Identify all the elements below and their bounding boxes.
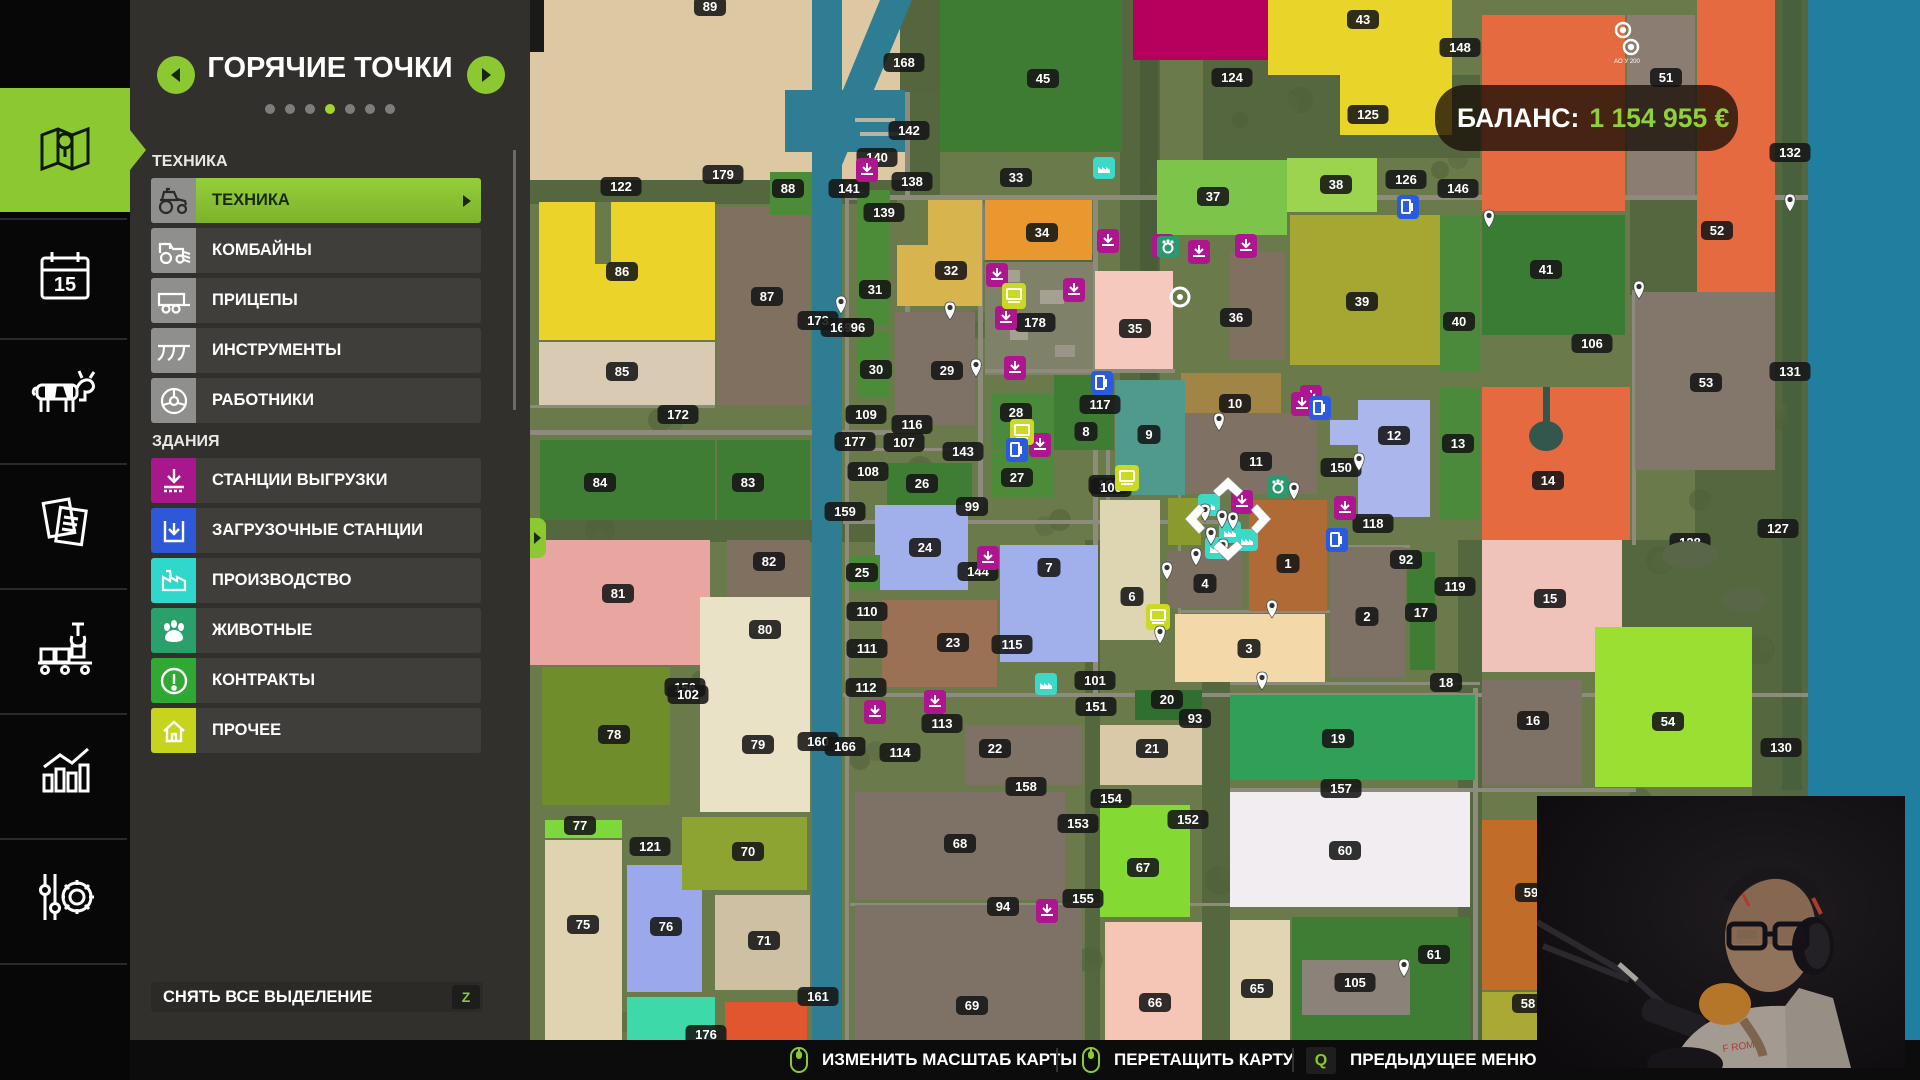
svg-text:114: 114 xyxy=(890,745,912,760)
svg-text:138: 138 xyxy=(901,174,923,189)
svg-text:122: 122 xyxy=(610,179,632,194)
svg-text:118: 118 xyxy=(1363,516,1384,531)
svg-text:61: 61 xyxy=(1427,947,1441,962)
svg-text:94: 94 xyxy=(996,899,1011,914)
svg-text:22: 22 xyxy=(988,741,1002,756)
svg-text:37: 37 xyxy=(1206,189,1220,204)
svg-text:15: 15 xyxy=(1543,591,1557,606)
svg-text:71: 71 xyxy=(757,933,771,948)
svg-text:96: 96 xyxy=(851,320,865,335)
svg-text:20: 20 xyxy=(1160,692,1174,707)
svg-text:26: 26 xyxy=(915,476,929,491)
svg-text:131: 131 xyxy=(1779,364,1801,379)
svg-text:27: 27 xyxy=(1010,470,1024,485)
svg-text:107: 107 xyxy=(893,435,915,450)
svg-text:68: 68 xyxy=(953,836,967,851)
svg-text:76: 76 xyxy=(659,919,673,934)
svg-text:176: 176 xyxy=(695,1027,717,1040)
svg-text:154: 154 xyxy=(1100,791,1122,806)
svg-text:7: 7 xyxy=(1045,560,1052,575)
svg-text:75: 75 xyxy=(576,917,590,932)
svg-text:51: 51 xyxy=(1659,70,1673,85)
svg-text:115: 115 xyxy=(1002,637,1023,652)
svg-text:158: 158 xyxy=(1015,779,1037,794)
svg-text:142: 142 xyxy=(898,123,920,138)
svg-text:150: 150 xyxy=(1330,460,1352,475)
svg-text:11: 11 xyxy=(1249,454,1263,469)
svg-text:67: 67 xyxy=(1136,860,1150,875)
svg-text:29: 29 xyxy=(940,363,954,378)
svg-text:148: 148 xyxy=(1449,40,1471,55)
svg-text:78: 78 xyxy=(607,727,621,742)
svg-text:40: 40 xyxy=(1452,314,1466,329)
svg-text:30: 30 xyxy=(869,362,883,377)
svg-text:126: 126 xyxy=(1395,172,1417,187)
svg-text:16: 16 xyxy=(1526,713,1540,728)
svg-text:12: 12 xyxy=(1387,428,1401,443)
svg-text:35: 35 xyxy=(1128,321,1142,336)
svg-text:119: 119 xyxy=(1445,579,1466,594)
svg-text:89: 89 xyxy=(703,0,717,14)
svg-text:105: 105 xyxy=(1344,975,1366,990)
svg-text:179: 179 xyxy=(712,167,734,182)
svg-text:168: 168 xyxy=(893,55,915,70)
svg-text:109: 109 xyxy=(855,407,877,422)
svg-text:84: 84 xyxy=(593,475,608,490)
svg-text:102: 102 xyxy=(677,687,699,702)
svg-text:108: 108 xyxy=(857,464,879,479)
svg-text:85: 85 xyxy=(615,364,629,379)
svg-text:151: 151 xyxy=(1085,699,1107,714)
svg-text:157: 157 xyxy=(1330,781,1352,796)
svg-text:58: 58 xyxy=(1521,996,1535,1011)
svg-text:14: 14 xyxy=(1541,473,1556,488)
svg-text:81: 81 xyxy=(611,586,625,601)
svg-text:9: 9 xyxy=(1145,427,1152,442)
svg-text:1: 1 xyxy=(1284,556,1291,571)
svg-text:110: 110 xyxy=(857,604,878,619)
svg-text:54: 54 xyxy=(1661,714,1676,729)
svg-text:177: 177 xyxy=(844,434,866,449)
svg-text:146: 146 xyxy=(1447,181,1469,196)
svg-text:152: 152 xyxy=(1177,812,1199,827)
svg-text:161: 161 xyxy=(807,989,829,1004)
svg-text:155: 155 xyxy=(1072,891,1094,906)
svg-text:53: 53 xyxy=(1699,375,1713,390)
svg-text:77: 77 xyxy=(573,818,587,833)
svg-text:23: 23 xyxy=(946,635,960,650)
svg-text:45: 45 xyxy=(1036,71,1050,86)
svg-text:32: 32 xyxy=(944,263,958,278)
svg-text:117: 117 xyxy=(1090,397,1111,412)
svg-text:125: 125 xyxy=(1357,107,1379,122)
svg-text:34: 34 xyxy=(1035,225,1050,240)
svg-text:121: 121 xyxy=(639,839,661,854)
svg-text:52: 52 xyxy=(1710,223,1724,238)
svg-text:21: 21 xyxy=(1145,741,1159,756)
svg-text:99: 99 xyxy=(965,499,979,514)
svg-text:93: 93 xyxy=(1188,711,1202,726)
svg-text:36: 36 xyxy=(1229,310,1243,325)
svg-text:24: 24 xyxy=(918,540,933,555)
svg-text:172: 172 xyxy=(667,407,689,422)
svg-text:166: 166 xyxy=(834,739,856,754)
svg-text:39: 39 xyxy=(1355,294,1369,309)
svg-text:111: 111 xyxy=(857,641,877,656)
svg-text:101: 101 xyxy=(1084,673,1106,688)
svg-text:124: 124 xyxy=(1221,70,1243,85)
svg-text:15: 15 xyxy=(54,274,76,296)
svg-text:87: 87 xyxy=(760,289,774,304)
svg-text:41: 41 xyxy=(1539,262,1553,277)
svg-text:17: 17 xyxy=(1414,605,1428,620)
svg-text:92: 92 xyxy=(1399,552,1413,567)
svg-text:139: 139 xyxy=(873,205,895,220)
svg-text:79: 79 xyxy=(751,737,765,752)
svg-text:69: 69 xyxy=(965,998,979,1013)
svg-text:143: 143 xyxy=(952,444,974,459)
svg-text:28: 28 xyxy=(1009,405,1023,420)
svg-text:8: 8 xyxy=(1082,424,1089,439)
svg-text:83: 83 xyxy=(741,475,755,490)
svg-text:2: 2 xyxy=(1363,609,1370,624)
svg-text:106: 106 xyxy=(1581,336,1603,351)
svg-text:82: 82 xyxy=(762,554,776,569)
svg-text:65: 65 xyxy=(1250,981,1264,996)
svg-text:6: 6 xyxy=(1128,589,1135,604)
svg-text:80: 80 xyxy=(758,622,772,637)
svg-text:10: 10 xyxy=(1228,396,1242,411)
svg-text:132: 132 xyxy=(1779,145,1801,160)
svg-text:66: 66 xyxy=(1148,995,1162,1010)
svg-text:25: 25 xyxy=(855,565,869,580)
svg-text:31: 31 xyxy=(868,282,882,297)
svg-text:70: 70 xyxy=(741,844,755,859)
svg-text:113: 113 xyxy=(932,716,953,731)
svg-text:3: 3 xyxy=(1245,641,1252,656)
svg-text:88: 88 xyxy=(781,181,795,196)
svg-text:112: 112 xyxy=(856,680,877,695)
svg-text:13: 13 xyxy=(1451,436,1465,451)
svg-text:33: 33 xyxy=(1009,170,1023,185)
svg-text:38: 38 xyxy=(1329,177,1343,192)
svg-text:127: 127 xyxy=(1767,521,1789,536)
svg-text:18: 18 xyxy=(1439,675,1453,690)
svg-text:153: 153 xyxy=(1067,816,1089,831)
svg-text:60: 60 xyxy=(1338,843,1352,858)
svg-text:141: 141 xyxy=(838,181,860,196)
svg-text:19: 19 xyxy=(1331,731,1345,746)
svg-text:178: 178 xyxy=(1024,315,1046,330)
svg-text:130: 130 xyxy=(1770,740,1792,755)
svg-text:86: 86 xyxy=(615,264,629,279)
svg-text:116: 116 xyxy=(902,417,923,432)
svg-text:АО У 200: АО У 200 xyxy=(1614,59,1640,65)
svg-text:159: 159 xyxy=(834,504,856,519)
svg-text:4: 4 xyxy=(1201,576,1209,591)
svg-text:43: 43 xyxy=(1356,12,1370,27)
